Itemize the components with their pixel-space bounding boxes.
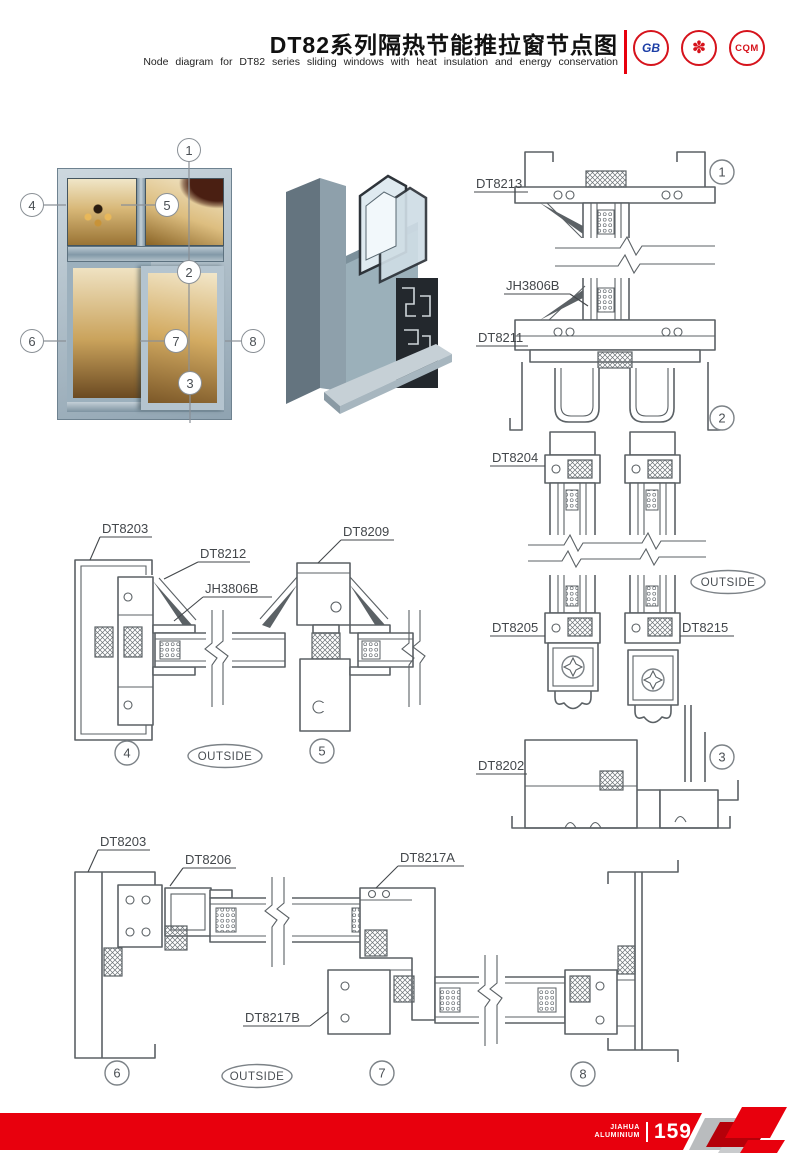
section-circle-2: 2 bbox=[718, 411, 725, 426]
section-circle-1: 1 bbox=[718, 165, 725, 180]
label-dt8212: DT8212 bbox=[200, 546, 246, 561]
outside-label-bottom: OUTSIDE bbox=[230, 1071, 285, 1083]
section-circle-3: 3 bbox=[718, 750, 725, 765]
outside-label-mid: OUTSIDE bbox=[198, 751, 253, 763]
label-dt8217b: DT8217B bbox=[245, 1010, 300, 1025]
callout-8: 8 bbox=[241, 329, 265, 353]
label-jh3806b-mid: JH3806B bbox=[205, 581, 258, 596]
label-dt8204: DT8204 bbox=[492, 450, 538, 465]
lower-horizontal-section-diagram: DT8203 DT8206 DT8217A DT8217B 6 OUTSIDE … bbox=[60, 830, 800, 1100]
callout-leader-lines bbox=[20, 138, 265, 430]
quality-seal-icon: ✽ bbox=[681, 30, 717, 66]
label-dt8213: DT8213 bbox=[476, 176, 522, 191]
label-dt8203-bottom: DT8203 bbox=[100, 834, 146, 849]
label-jh3806b: JH3806B bbox=[506, 278, 559, 293]
page-subtitle: Node diagram for DT82 series sliding win… bbox=[130, 56, 618, 68]
section-circle-6: 6 bbox=[113, 1066, 120, 1081]
profile-3d-render bbox=[268, 160, 458, 430]
label-dt8211: DT8211 bbox=[478, 330, 523, 345]
callout-6: 6 bbox=[20, 329, 44, 353]
label-dt8215: DT8215 bbox=[682, 620, 728, 635]
label-dt8202: DT8202 bbox=[478, 758, 524, 773]
section-circle-5: 5 bbox=[318, 744, 325, 759]
brand-name-top: JIAHUA bbox=[595, 1124, 640, 1132]
section-circle-4: 4 bbox=[123, 746, 130, 761]
callout-1: 1 bbox=[177, 138, 201, 162]
cqm-certification-logo: CQM bbox=[729, 30, 765, 66]
footer-divider bbox=[646, 1122, 648, 1142]
vertical-section-diagram: DT8213 1 JH3806B DT8211 2 DT8204 OUTSIDE… bbox=[470, 140, 800, 860]
outside-label-right: OUTSIDE bbox=[701, 577, 756, 589]
gb-certification-logo: GB bbox=[633, 30, 669, 66]
callout-3: 3 bbox=[178, 371, 202, 395]
section-circle-7: 7 bbox=[378, 1066, 385, 1081]
section-circle-8: 8 bbox=[579, 1067, 586, 1082]
callout-5: 5 bbox=[155, 193, 179, 217]
label-dt8205: DT8205 bbox=[492, 620, 538, 635]
page-number: 159 bbox=[654, 1120, 692, 1144]
seal-glyph: ✽ bbox=[692, 38, 706, 58]
title-divider bbox=[624, 30, 627, 74]
catalog-page: DT82系列隔热节能推拉窗节点图 Node diagram for DT82 s… bbox=[0, 0, 800, 1167]
footer-pagination: JIAHUA ALUMINIUM 159 bbox=[540, 1113, 692, 1150]
window-photo: 1 4 5 2 6 7 8 3 bbox=[20, 138, 265, 430]
callout-4: 4 bbox=[20, 193, 44, 217]
label-dt8209: DT8209 bbox=[343, 524, 389, 539]
callout-2: 2 bbox=[177, 260, 201, 284]
callout-7: 7 bbox=[164, 329, 188, 353]
label-dt8203-mid: DT8203 bbox=[102, 521, 148, 536]
page-title: DT82系列隔热节能推拉窗节点图 bbox=[140, 26, 618, 60]
upper-horizontal-section-diagram: DT8203 DT8212 JH3806B DT8209 4 OUTSIDE 5 bbox=[60, 515, 460, 785]
gb-logo-text: GB bbox=[642, 41, 660, 55]
cqm-logo-text: CQM bbox=[735, 43, 759, 54]
label-dt8217a: DT8217A bbox=[400, 850, 455, 865]
brand-name-bottom: ALUMINIUM bbox=[595, 1132, 640, 1140]
label-dt8206: DT8206 bbox=[185, 852, 231, 867]
